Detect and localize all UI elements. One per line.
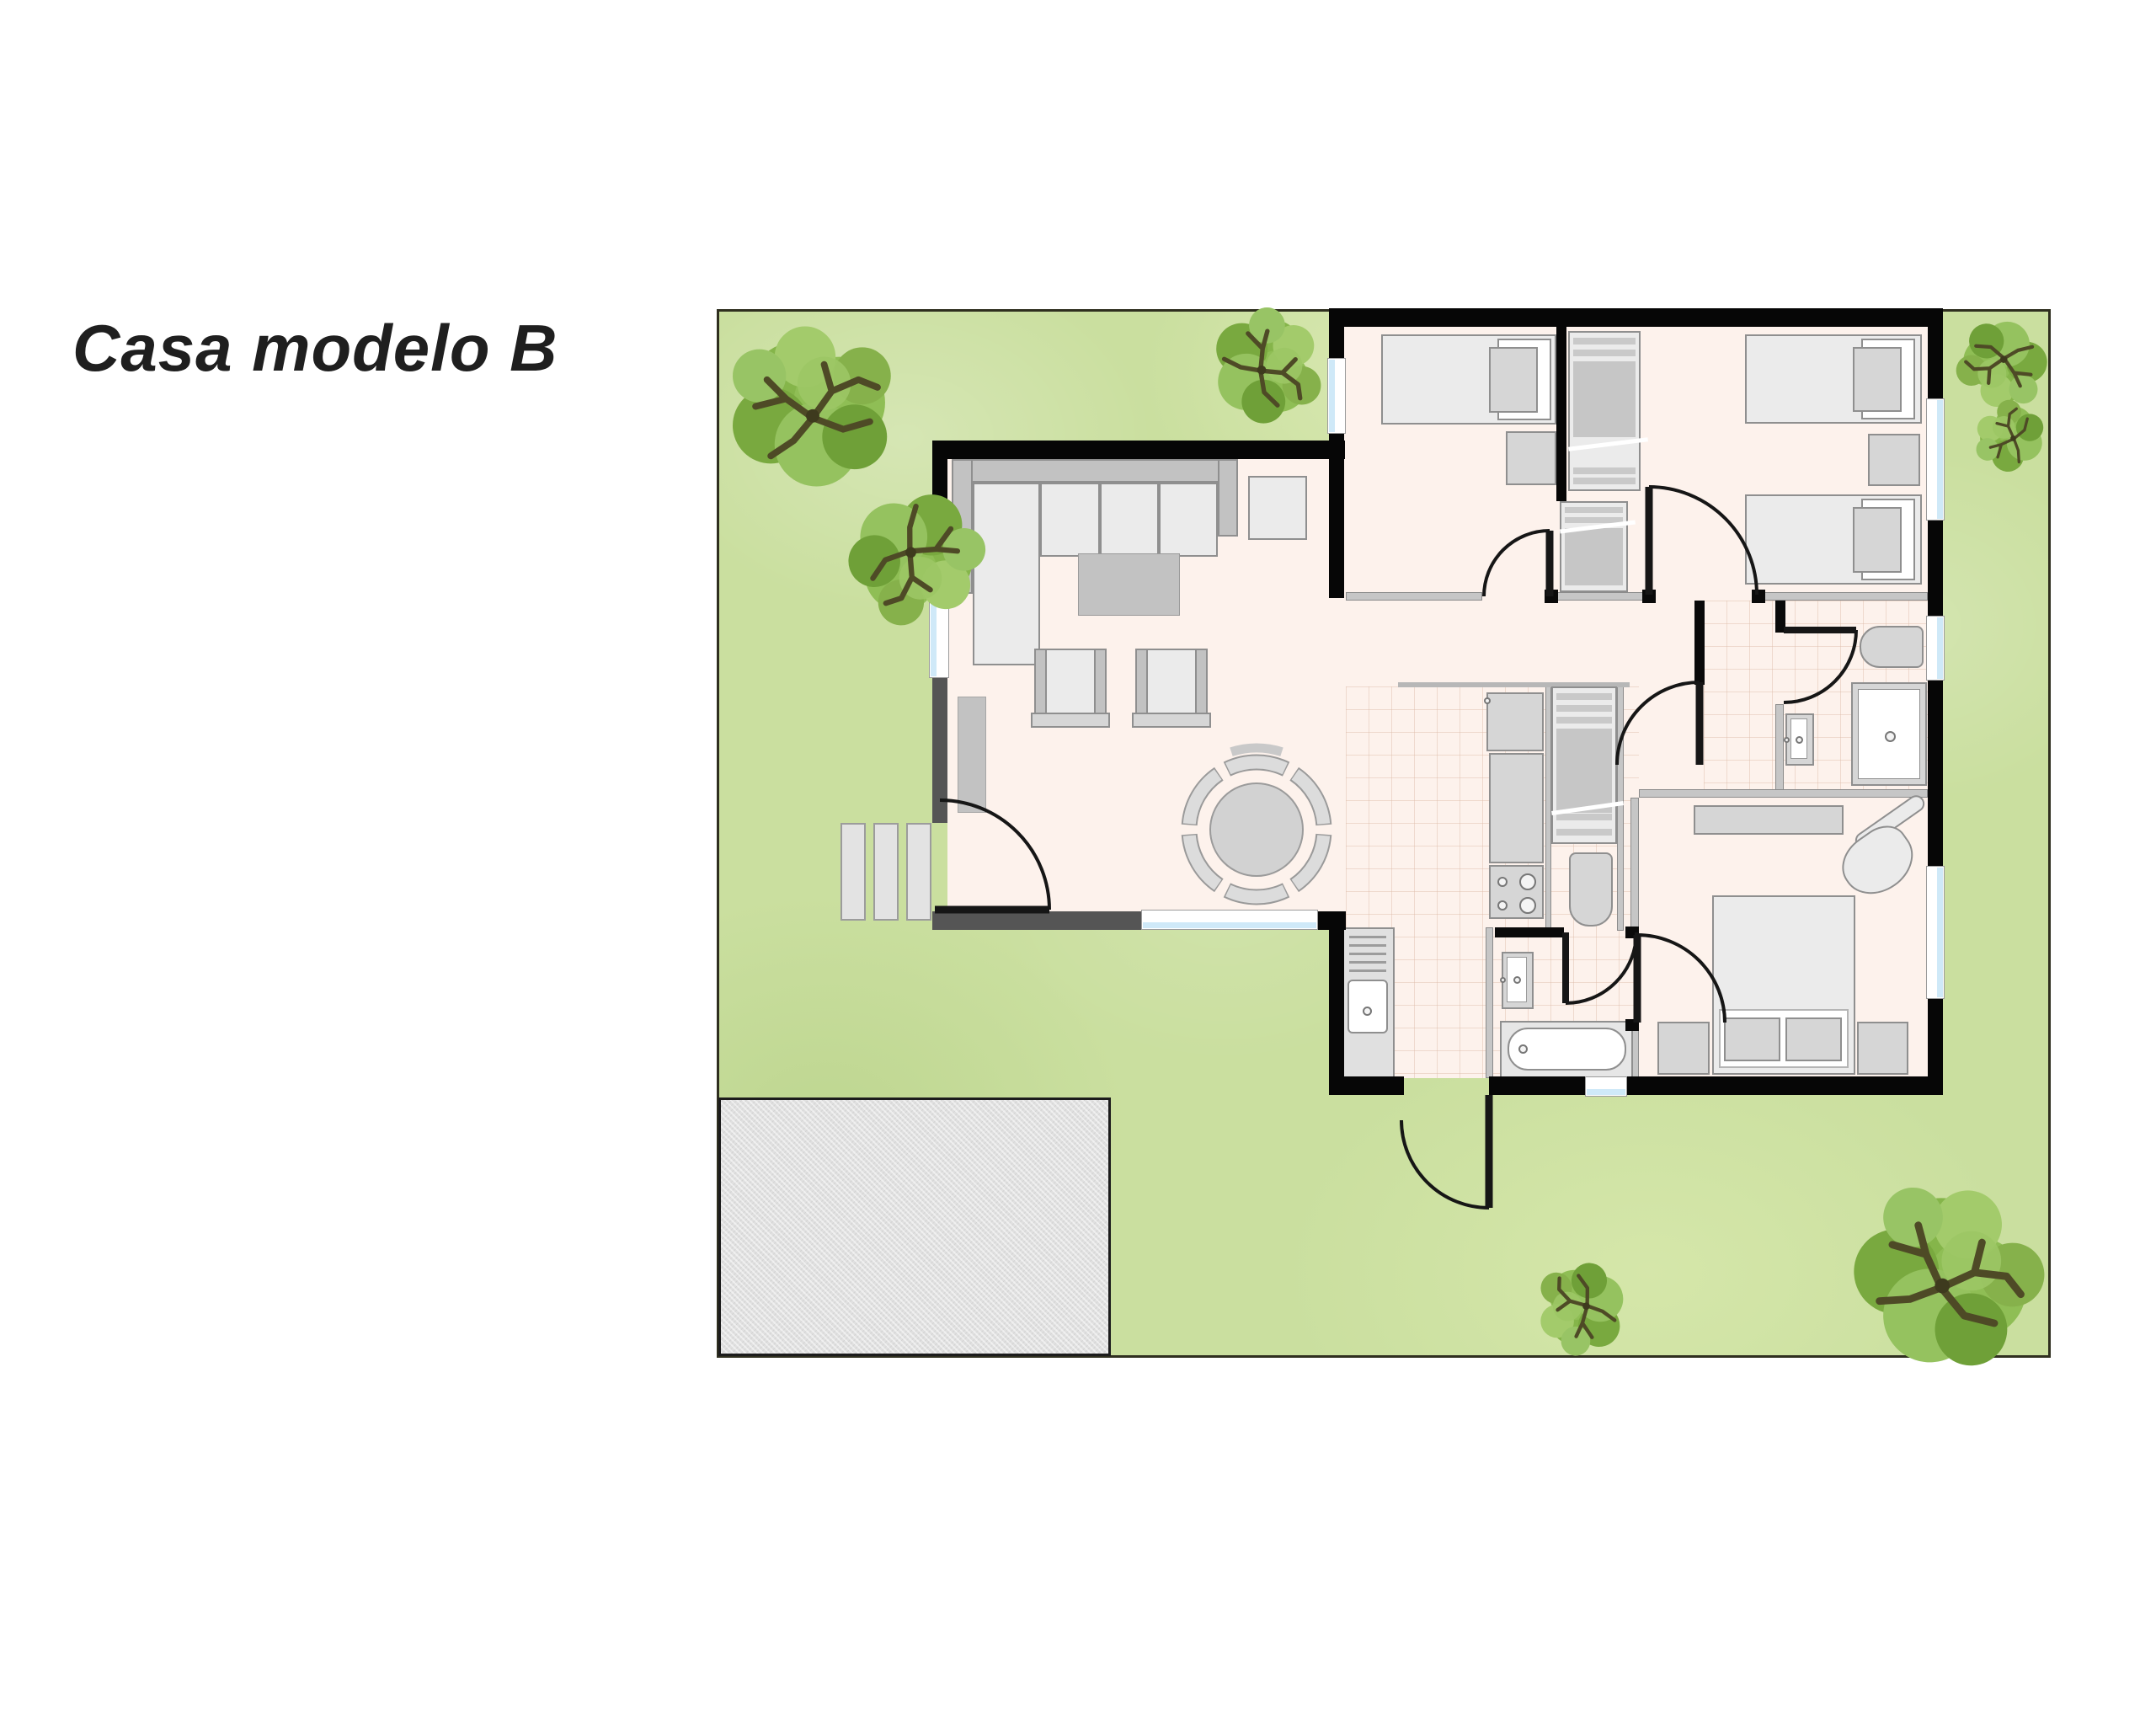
tv-console bbox=[958, 697, 986, 813]
sofa-backrest bbox=[952, 459, 1231, 483]
sofa-cushion bbox=[1159, 483, 1218, 557]
wall-segment bbox=[1928, 521, 1943, 616]
window-glass bbox=[1937, 617, 1943, 679]
kitchen-counter bbox=[1489, 753, 1544, 863]
nightstand bbox=[1868, 434, 1920, 486]
sofa-chaise bbox=[973, 483, 1040, 665]
wall-segment bbox=[932, 441, 1345, 459]
wall-segment bbox=[1639, 789, 1928, 798]
sofa-armrest bbox=[1218, 459, 1238, 537]
window bbox=[1327, 358, 1346, 434]
wall-segment bbox=[1346, 592, 1482, 601]
wall-segment bbox=[1489, 1076, 1585, 1095]
window-glass bbox=[931, 541, 937, 676]
floor-passage bbox=[1329, 598, 1346, 914]
plan-title: Casa modelo B bbox=[72, 310, 558, 387]
armchair-front bbox=[1031, 713, 1110, 728]
stepping-stone bbox=[873, 823, 899, 921]
stepping-stone bbox=[906, 823, 931, 921]
wall-segment bbox=[1642, 590, 1656, 603]
wall-segment bbox=[932, 911, 1141, 930]
wall-segment bbox=[1617, 686, 1624, 931]
burner bbox=[1497, 900, 1508, 911]
faucet bbox=[1784, 737, 1790, 743]
wardrobe bbox=[1551, 686, 1617, 844]
wall-segment bbox=[1329, 308, 1344, 358]
wall-segment bbox=[1752, 590, 1765, 603]
drain bbox=[1885, 731, 1896, 742]
wall-segment bbox=[1545, 590, 1558, 603]
coffee-table bbox=[1078, 553, 1180, 616]
wall-segment bbox=[1545, 686, 1551, 931]
shower bbox=[1851, 682, 1927, 786]
wall-segment bbox=[1625, 927, 1639, 938]
stepping-stone bbox=[841, 823, 866, 921]
wall-segment bbox=[1495, 927, 1564, 937]
wall-segment bbox=[1550, 592, 1649, 601]
desk bbox=[1694, 805, 1844, 835]
wardrobe bbox=[1560, 501, 1628, 592]
wall-segment bbox=[932, 441, 947, 539]
side-table bbox=[1248, 476, 1307, 540]
wall-segment bbox=[1758, 592, 1928, 601]
nightstand bbox=[1857, 1022, 1908, 1075]
nightstand bbox=[1657, 1022, 1710, 1075]
stove bbox=[1489, 865, 1544, 919]
nightstand bbox=[1506, 431, 1556, 485]
wardrobe bbox=[1568, 331, 1641, 491]
window-glass bbox=[1143, 922, 1316, 928]
burner bbox=[1519, 897, 1536, 914]
armchair-seat bbox=[1146, 649, 1197, 723]
wall-segment bbox=[1630, 798, 1639, 935]
armchair-seat bbox=[1045, 649, 1096, 723]
wall-segment bbox=[1329, 308, 1943, 327]
wall-segment bbox=[1556, 327, 1566, 501]
bed-pillow bbox=[1853, 347, 1902, 412]
armchair-arm bbox=[1094, 649, 1107, 723]
wall-segment bbox=[1775, 601, 1785, 633]
wall-segment bbox=[1627, 1076, 1943, 1095]
toilet bbox=[1569, 852, 1613, 927]
wall-segment bbox=[932, 678, 947, 823]
wall-segment bbox=[1928, 308, 1943, 398]
wall-segment bbox=[1318, 911, 1346, 930]
toilet bbox=[1860, 626, 1924, 668]
sofa-cushion bbox=[1100, 483, 1159, 557]
sofa-armrest bbox=[952, 459, 973, 594]
fridge bbox=[1486, 692, 1544, 751]
fridge-handle bbox=[1484, 697, 1491, 704]
wall-segment bbox=[1775, 704, 1784, 796]
faucet bbox=[1500, 977, 1506, 983]
window-glass bbox=[1937, 868, 1943, 997]
drain bbox=[1796, 736, 1803, 744]
window bbox=[929, 539, 949, 678]
wall-segment bbox=[1928, 681, 1943, 866]
armchair-front bbox=[1132, 713, 1211, 728]
bed-pillow bbox=[1853, 507, 1902, 573]
window-glass bbox=[1937, 400, 1943, 519]
drain bbox=[1513, 976, 1521, 984]
wall-segment bbox=[1625, 1019, 1639, 1031]
faucet bbox=[1363, 1007, 1372, 1016]
window bbox=[1585, 1076, 1627, 1097]
patio bbox=[718, 1097, 1111, 1356]
bathroom-sink bbox=[1502, 952, 1534, 1009]
window bbox=[1926, 398, 1945, 521]
window bbox=[1926, 866, 1945, 999]
bed-pillow bbox=[1724, 1017, 1780, 1061]
burner bbox=[1519, 873, 1536, 890]
window-glass bbox=[1329, 360, 1335, 432]
window bbox=[1141, 910, 1318, 930]
window bbox=[1926, 616, 1945, 681]
bed-pillow bbox=[1785, 1017, 1842, 1061]
burner bbox=[1497, 877, 1508, 887]
bed-pillow bbox=[1489, 347, 1538, 413]
bathroom-sink bbox=[1785, 713, 1814, 766]
floor-plan-scene: Casa modelo B bbox=[0, 0, 2156, 1725]
sofa-cushion bbox=[1040, 483, 1100, 557]
armchair-arm bbox=[1195, 649, 1208, 723]
window-glass bbox=[1587, 1089, 1625, 1095]
wall-segment bbox=[1329, 914, 1344, 1095]
wall-segment bbox=[1486, 927, 1493, 1078]
faucet bbox=[1518, 1044, 1528, 1054]
wall-segment bbox=[1694, 601, 1705, 685]
bathtub bbox=[1500, 1021, 1633, 1078]
kitchen-sink-unit bbox=[1341, 927, 1395, 1094]
